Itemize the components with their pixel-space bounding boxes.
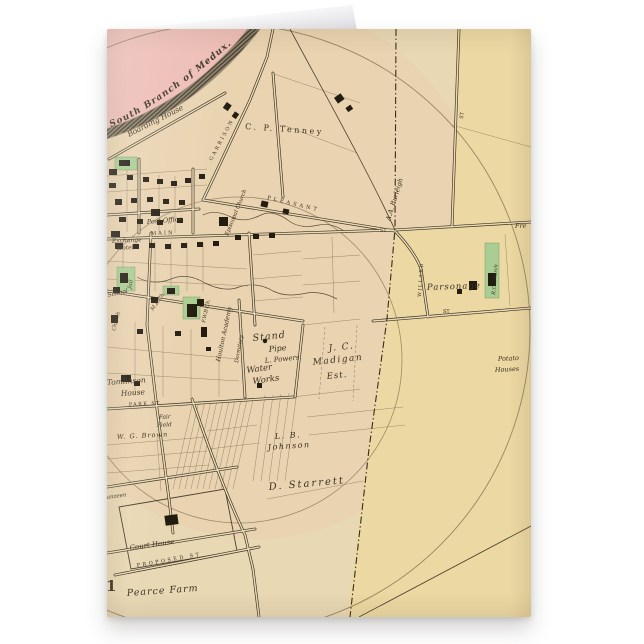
- card-back-fold: [119, 3, 357, 30]
- dormitory-building: [201, 327, 207, 337]
- label-st-top-right: ST: [459, 111, 466, 119]
- product-mockup-stage: South Branch of Medux. Boarding House C.…: [0, 0, 644, 644]
- court-house-building: [164, 514, 178, 526]
- episcopal-church-building: [219, 217, 228, 226]
- label-main-st: MAIN: [151, 230, 175, 237]
- greeting-card-front[interactable]: South Branch of Medux. Boarding House C.…: [107, 29, 531, 617]
- label-house: House: [120, 387, 146, 398]
- exchange-hotel-building: [111, 231, 120, 237]
- label-fre: Fre: [514, 222, 527, 230]
- label-houses: Houses: [494, 365, 520, 374]
- label-plate-number: 1: [107, 577, 116, 595]
- label-st-junction: ST.: [380, 228, 388, 234]
- label-parsonage: Parsonage: [426, 281, 481, 293]
- label-potato: Potato: [497, 354, 520, 363]
- post-office-building: [151, 209, 160, 216]
- label-field: Field: [156, 422, 172, 429]
- label-fair: Fair: [158, 414, 172, 421]
- vintage-town-map: South Branch of Medux. Boarding House C.…: [107, 29, 531, 617]
- label-lb: L. B.: [274, 430, 302, 441]
- label-hotel: Hotel: [116, 244, 134, 252]
- label-st-right: ST: [443, 309, 451, 315]
